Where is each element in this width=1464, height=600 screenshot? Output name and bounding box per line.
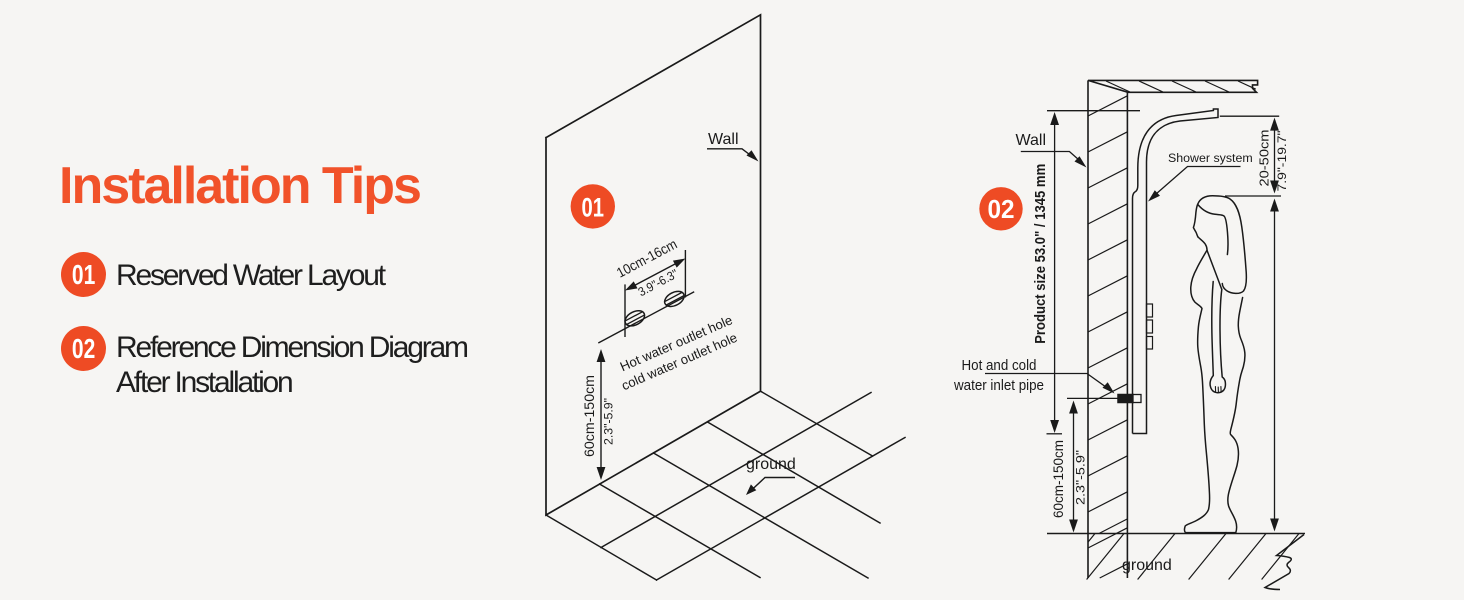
svg-text:Shower system: Shower system [1168, 151, 1253, 165]
svg-text:Product size 53.0" / 1345 mm: Product size 53.0" / 1345 mm [1032, 164, 1049, 344]
svg-text:01: 01 [582, 192, 605, 222]
svg-text:02: 02 [988, 194, 1015, 224]
svg-text:Wall: Wall [1016, 132, 1047, 149]
svg-text:2.3"-5.9": 2.3"-5.9" [1074, 450, 1088, 505]
svg-text:7.9"-19.7": 7.9"-19.7" [1275, 131, 1289, 192]
svg-text:2.3"-5.9": 2.3"-5.9" [602, 398, 616, 445]
svg-text:water inlet pipe: water inlet pipe [953, 377, 1044, 394]
svg-text:ground: ground [746, 456, 796, 473]
svg-text:60cm-150cm: 60cm-150cm [1051, 440, 1067, 518]
svg-text:ground: ground [1122, 557, 1172, 574]
svg-text:60cm-150cm: 60cm-150cm [582, 375, 598, 457]
svg-text:Hot and cold: Hot and cold [962, 357, 1037, 374]
svg-text:Wall: Wall [708, 131, 739, 148]
svg-text:20-50cm: 20-50cm [1257, 130, 1272, 187]
svg-text:3.9"-6.3": 3.9"-6.3" [636, 267, 681, 300]
